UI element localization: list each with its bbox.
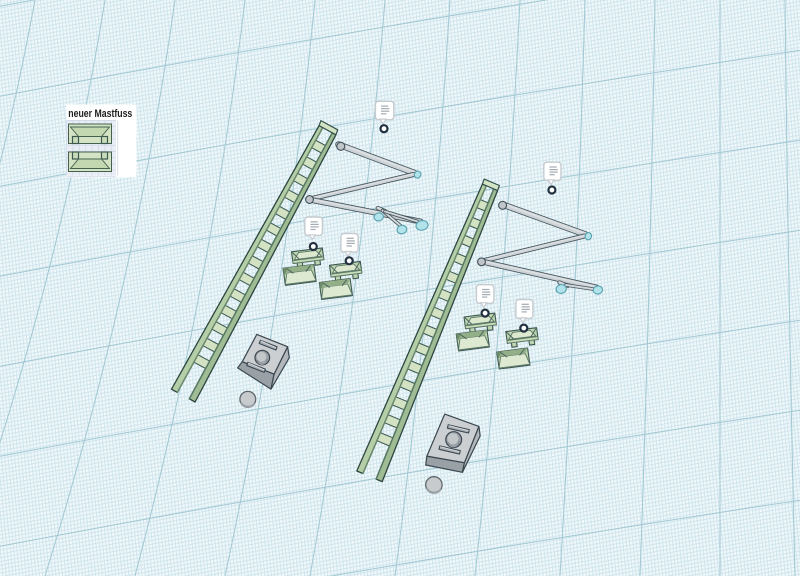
svg-text:neuer Mastfuss: neuer Mastfuss (68, 108, 132, 120)
